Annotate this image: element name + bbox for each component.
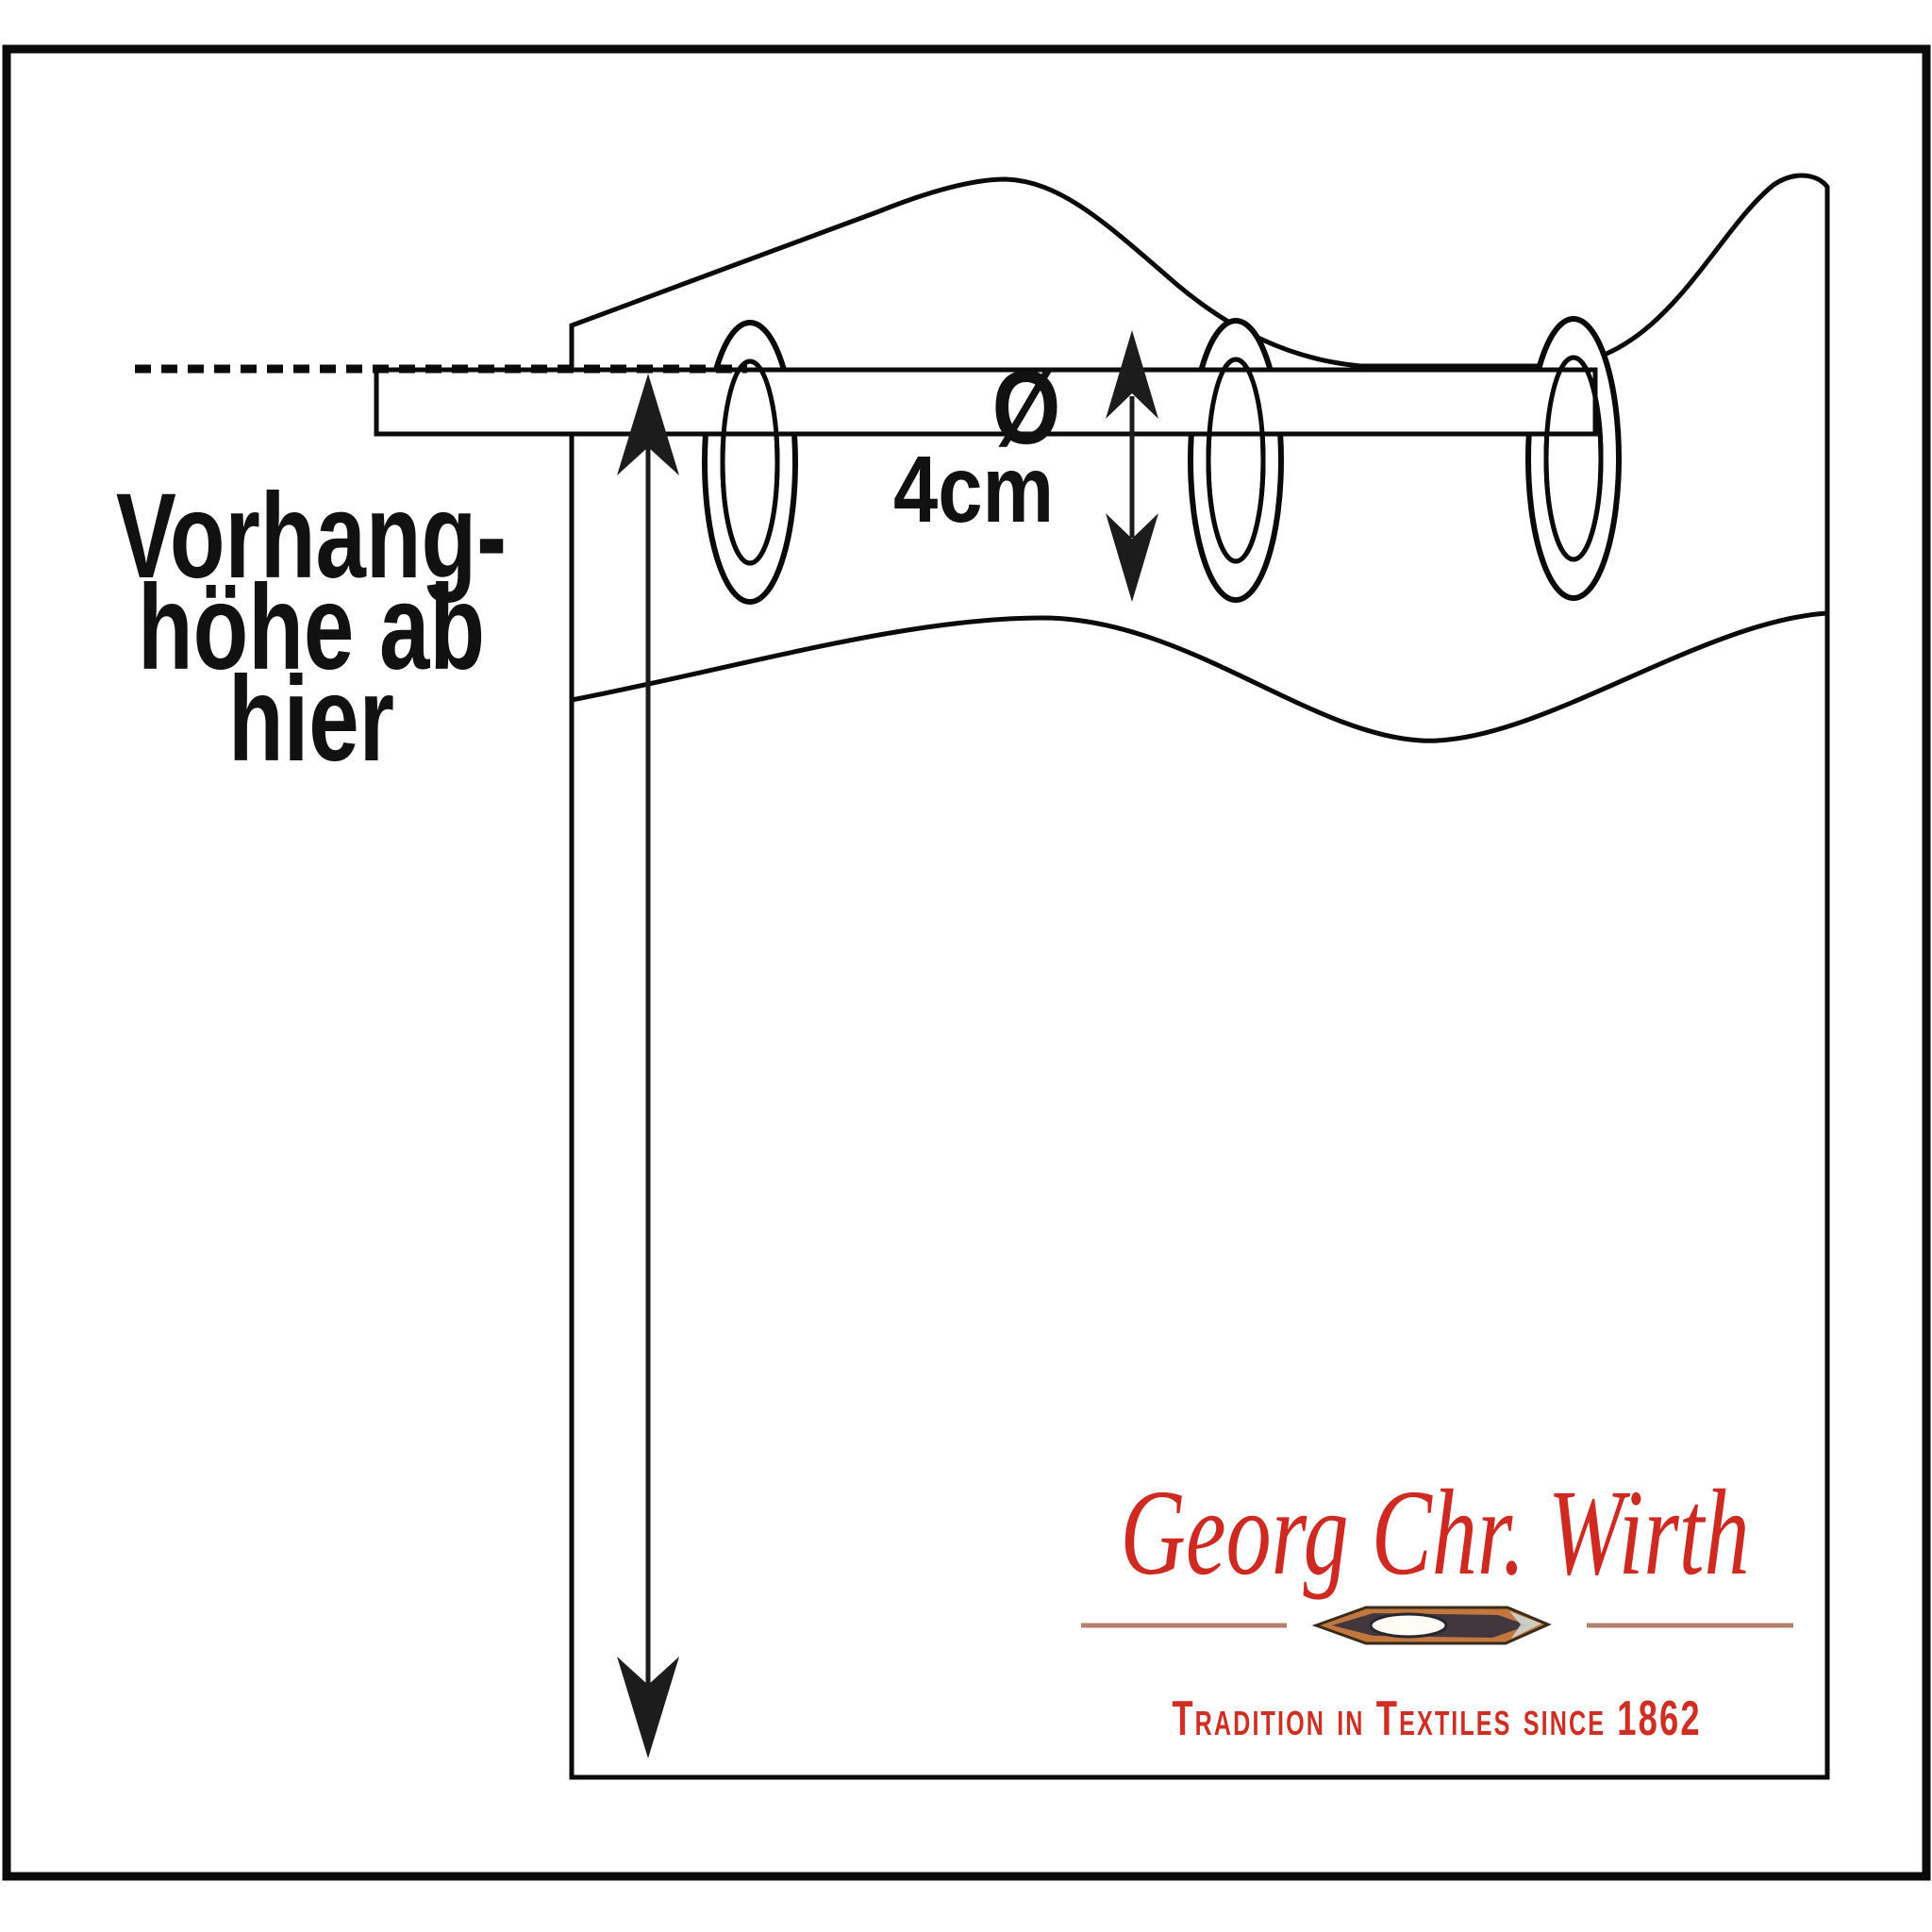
diameter-value-label: 4cm — [893, 436, 1054, 541]
shuttle-eye — [1371, 1614, 1446, 1637]
grommet-3 — [1528, 319, 1619, 598]
curtain-rod — [376, 370, 1595, 434]
curtain-height-label: Vorhang- höhe ab hier — [116, 469, 507, 787]
curtain-diagram: Ø 4cm Vorhang- höhe ab hier Georg Chr. W… — [0, 0, 1932, 1932]
grommet-2 — [1191, 321, 1281, 600]
brand-tagline-text: Tradition in Textiles since 1862 — [1172, 1690, 1701, 1745]
diagram-canvas: Ø 4cm Vorhang- höhe ab hier Georg Chr. W… — [0, 0, 1932, 1932]
weaving-shuttle-icon — [1316, 1607, 1548, 1643]
curtain-height-label-line3: hier — [228, 652, 394, 787]
grommet-1 — [705, 323, 795, 602]
brand-name-text: Georg Chr. Wirth — [1120, 1464, 1749, 1600]
